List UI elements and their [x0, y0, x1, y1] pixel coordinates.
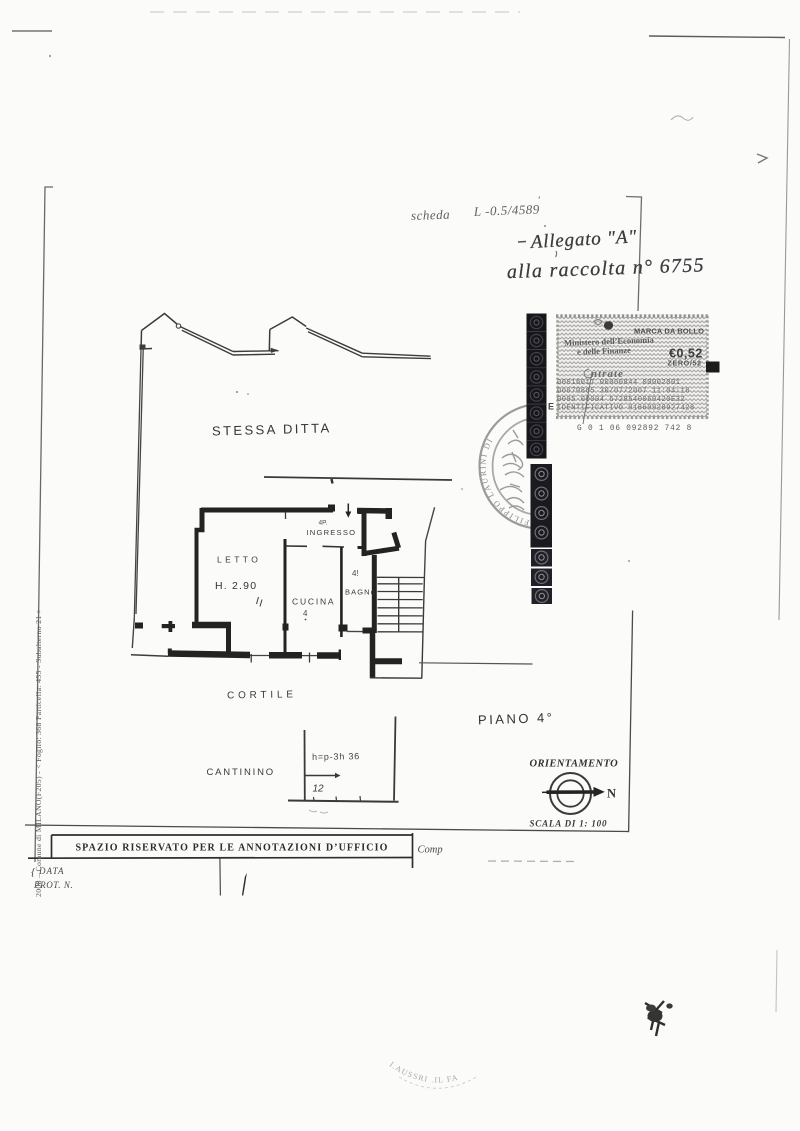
svg-text:STESSA DITTA: STESSA DITTA — [212, 420, 332, 438]
svg-text:H. 2.90: H. 2.90 — [215, 580, 257, 592]
svg-text:SCALA DI 1: 100: SCALA DI 1: 100 — [530, 819, 608, 829]
svg-text:00070885 30/07/2007 11:04:18: 00070885 30/07/2007 11:04:18 — [557, 388, 690, 396]
svg-text:00016017 00000844 0000200: 00016017 00000844 00002001 — [557, 379, 681, 387]
svg-text:E: E — [548, 402, 554, 412]
svg-text:12: 12 — [313, 784, 325, 795]
svg-text:SPAZIO RISERVATO PER LE ANNOTA: SPAZIO RISERVATO PER LE ANNOTAZIONI D’UF… — [76, 843, 389, 854]
svg-text:4: 4 — [303, 609, 308, 618]
svg-text:INGRESSO: INGRESSO — [307, 528, 357, 537]
svg-text:CANTININO: CANTININO — [207, 767, 275, 778]
svg-text:CORTILE: CORTILE — [227, 689, 297, 701]
svg-text:4!: 4! — [352, 569, 359, 578]
svg-text:BAGNo: BAGNo — [345, 588, 376, 597]
svg-text:IDENTIFICATIVO 0186092892742: IDENTIFICATIVO 01860928927428 — [557, 404, 695, 412]
svg-text:PIANO 4°: PIANO 4° — [478, 710, 555, 728]
svg-text:N: N — [607, 787, 616, 801]
svg-text:4P.: 4P. — [319, 520, 328, 527]
svg-text:e delle Finanze: e delle Finanze — [577, 345, 631, 357]
svg-text:ORIENTAMENTO: ORIENTAMENTO — [530, 759, 619, 770]
svg-text:Comp: Comp — [418, 845, 443, 856]
svg-text:LETTO: LETTO — [217, 555, 261, 565]
svg-text:L -0.5/4589: L -0.5/4589 — [473, 202, 540, 219]
svg-text:ntrate: ntrate — [591, 368, 624, 380]
svg-text:0085-00004 5728540060420E3: 0085-00004 5728540060420E32 — [557, 396, 685, 404]
svg-text:2008 – Comune di MILANO(F205): 2008 – Comune di MILANO(F205) - < Foglio… — [34, 608, 43, 897]
svg-text:CUCINA: CUCINA — [292, 597, 335, 607]
svg-text:ZERO/52: ZERO/52 — [668, 359, 702, 368]
svg-text:scheda: scheda — [411, 207, 451, 223]
svg-text:G 0 1 06 092892 742 8: G 0 1 06 092892 742 8 — [577, 425, 692, 433]
svg-text:h=p-3h 36: h=p-3h 36 — [312, 751, 360, 762]
